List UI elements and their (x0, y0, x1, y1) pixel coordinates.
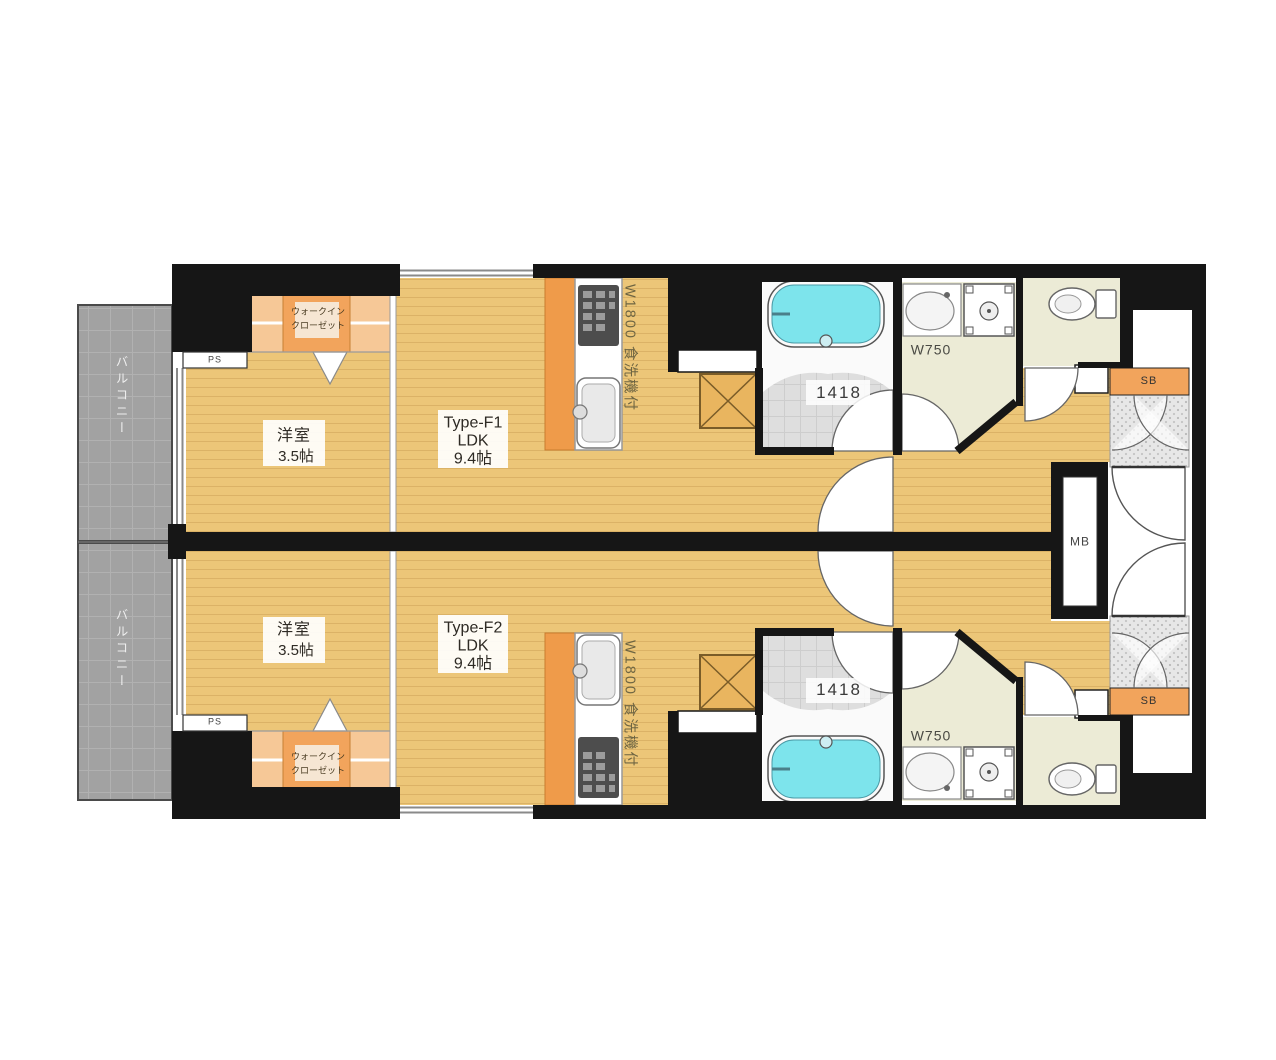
ps-label: PS (208, 355, 222, 364)
floor-plan: 洋室 3.5帖 Type-F1 LDK 9.4帖 W1800 食洗機付 1418… (0, 0, 1276, 1060)
unit-type-label: Type-F2 (444, 621, 503, 638)
floor-plan-graphics (0, 0, 1276, 1060)
vanity-label: W750 (911, 729, 952, 744)
walkin-closet-label-1: ウォークイン (291, 307, 345, 316)
balcony-label: バルコニー (114, 608, 127, 691)
vanity-label: W750 (911, 343, 952, 358)
ldk-size-label: 9.4帖 (454, 452, 492, 469)
bedroom-size-label: 3.5帖 (278, 449, 314, 465)
kitchen-label: W1800 食洗機付 (622, 284, 637, 412)
party-wall-left-stub (168, 524, 186, 559)
bedroom-size-label: 3.5帖 (278, 643, 314, 659)
bath-size-label: 1418 (816, 681, 862, 699)
bedroom-label: 洋室 (277, 429, 311, 446)
ldk-label: LDK (457, 639, 488, 656)
bath-size-label: 1418 (816, 384, 862, 402)
unit-type-label: Type-F1 (444, 416, 503, 433)
walkin-closet-label-2: クローゼット (291, 321, 345, 330)
kitchen-label: W1800 食洗機付 (622, 640, 637, 768)
ldk-label: LDK (457, 434, 488, 451)
party-wall (168, 532, 1051, 551)
walkin-closet-label-1: ウォークイン (291, 752, 345, 761)
shoebox-label: SB (1141, 696, 1158, 708)
right-outer-wall (1192, 264, 1206, 819)
meter-box-label: MB (1070, 536, 1090, 549)
unit-type-f2 (172, 543, 1206, 819)
balcony-label: バルコニー (114, 355, 127, 438)
walkin-closet-label-2: クローゼット (291, 766, 345, 775)
shoebox-label: SB (1141, 376, 1158, 388)
ps-label: PS (208, 717, 222, 726)
ldk-size-label: 9.4帖 (454, 657, 492, 674)
bedroom-label: 洋室 (277, 623, 311, 640)
